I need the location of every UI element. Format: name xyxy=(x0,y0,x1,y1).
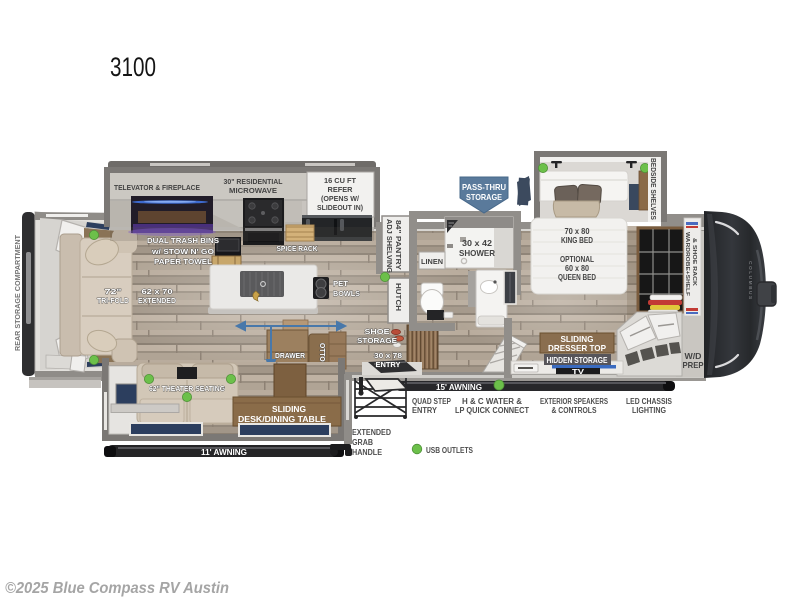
svg-text:HIDDEN STORAGE: HIDDEN STORAGE xyxy=(547,355,608,365)
svg-text:62" THEATER SEATING: 62" THEATER SEATING xyxy=(149,384,225,393)
svg-text:PASS-THRU: PASS-THRU xyxy=(462,182,506,192)
svg-text:PET: PET xyxy=(333,279,348,288)
svg-text:SHOWER: SHOWER xyxy=(459,248,495,258)
svg-text:BOWLS: BOWLS xyxy=(333,289,360,298)
svg-text:EXTENDED: EXTENDED xyxy=(352,427,391,437)
svg-text:REAR STORAGE COMPARTMENT: REAR STORAGE COMPARTMENT xyxy=(15,234,22,351)
svg-text:SHOE: SHOE xyxy=(365,327,390,336)
svg-text:LIGHTING: LIGHTING xyxy=(632,405,666,415)
svg-text:KING BED: KING BED xyxy=(561,235,593,245)
svg-text:& CONTROLS: & CONTROLS xyxy=(552,405,597,415)
svg-text:ENTRY: ENTRY xyxy=(376,360,401,369)
svg-text:USB OUTLETS: USB OUTLETS xyxy=(426,445,473,455)
svg-text:DUAL TRASH BINS: DUAL TRASH BINS xyxy=(147,236,219,245)
svg-text:SLIDEOUT IN): SLIDEOUT IN) xyxy=(317,203,364,212)
svg-text:COLUMBUS: COLUMBUS xyxy=(747,261,753,301)
svg-text:DRAWER: DRAWER xyxy=(275,351,305,360)
svg-text:PREP: PREP xyxy=(683,361,705,370)
svg-text:30 x 42: 30 x 42 xyxy=(462,238,492,248)
svg-text:REFER: REFER xyxy=(328,185,354,194)
svg-text:SLIDING: SLIDING xyxy=(561,335,594,344)
svg-text:HANDLE: HANDLE xyxy=(352,447,382,457)
svg-text:3100: 3100 xyxy=(110,52,156,82)
svg-text:LINEN: LINEN xyxy=(421,257,443,266)
svg-text:EXTENDED: EXTENDED xyxy=(138,296,176,305)
svg-text:©2025 Blue Compass RV Austin: ©2025 Blue Compass RV Austin xyxy=(5,580,229,597)
svg-text:11' AWNING: 11' AWNING xyxy=(201,447,247,457)
svg-text:QUEEN BED: QUEEN BED xyxy=(558,272,596,282)
svg-text:TELEVATOR & FIREPLACE: TELEVATOR & FIREPLACE xyxy=(114,183,200,192)
svg-text:DRESSER TOP: DRESSER TOP xyxy=(548,344,607,353)
svg-text:72": 72" xyxy=(105,287,122,296)
svg-text:PAPER TOWEL: PAPER TOWEL xyxy=(154,257,212,266)
svg-text:84" PANTRY: 84" PANTRY xyxy=(394,220,403,270)
svg-text:SPICE RACK: SPICE RACK xyxy=(277,244,318,253)
svg-text:ADJ SHELVING: ADJ SHELVING xyxy=(385,219,394,273)
svg-text:(OPENS W/: (OPENS W/ xyxy=(321,194,359,203)
svg-text:SLIDING: SLIDING xyxy=(272,405,306,414)
svg-text:w/ STOW N' GO: w/ STOW N' GO xyxy=(151,247,214,256)
svg-text:62 x 70: 62 x 70 xyxy=(142,287,173,296)
svg-text:HUTCH: HUTCH xyxy=(394,283,403,311)
svg-text:DESK/DINING TABLE: DESK/DINING TABLE xyxy=(238,415,327,424)
svg-text:STORAGE: STORAGE xyxy=(466,192,502,202)
svg-text:LP QUICK CONNECT: LP QUICK CONNECT xyxy=(455,405,530,415)
svg-text:GRAB: GRAB xyxy=(352,437,373,447)
svg-text:30" RESIDENTIAL: 30" RESIDENTIAL xyxy=(224,177,284,186)
svg-text:& SHOE RACK: & SHOE RACK xyxy=(691,238,697,287)
svg-text:W/D: W/D xyxy=(685,352,702,361)
svg-text:15' AWNING: 15' AWNING xyxy=(436,382,482,392)
svg-text:TV: TV xyxy=(572,367,584,376)
svg-text:BEDSIDE SHELVES: BEDSIDE SHELVES xyxy=(649,158,658,220)
svg-text:ENTRY: ENTRY xyxy=(412,405,437,415)
svg-text:WARDROBE+SHELF: WARDROBE+SHELF xyxy=(684,232,690,296)
svg-text:STORAGE: STORAGE xyxy=(357,336,397,345)
svg-text:16 CU FT: 16 CU FT xyxy=(324,176,357,185)
svg-text:MICROWAVE: MICROWAVE xyxy=(229,186,277,195)
svg-text:30 x 78: 30 x 78 xyxy=(374,351,403,360)
svg-text:TRI-FOLD: TRI-FOLD xyxy=(97,296,129,305)
